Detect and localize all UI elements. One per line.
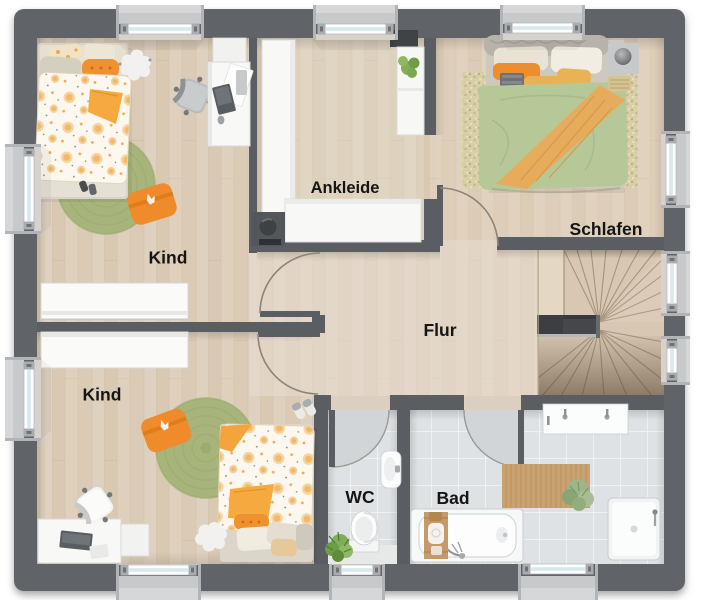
- svg-text:Kind: Kind: [83, 385, 122, 405]
- svg-text:Ankleide: Ankleide: [311, 179, 380, 197]
- svg-text:Kind: Kind: [149, 248, 188, 268]
- svg-text:Schlafen: Schlafen: [570, 219, 643, 239]
- svg-text:Bad: Bad: [436, 488, 469, 508]
- svg-text:WC: WC: [345, 487, 375, 507]
- svg-text:Flur: Flur: [423, 320, 456, 340]
